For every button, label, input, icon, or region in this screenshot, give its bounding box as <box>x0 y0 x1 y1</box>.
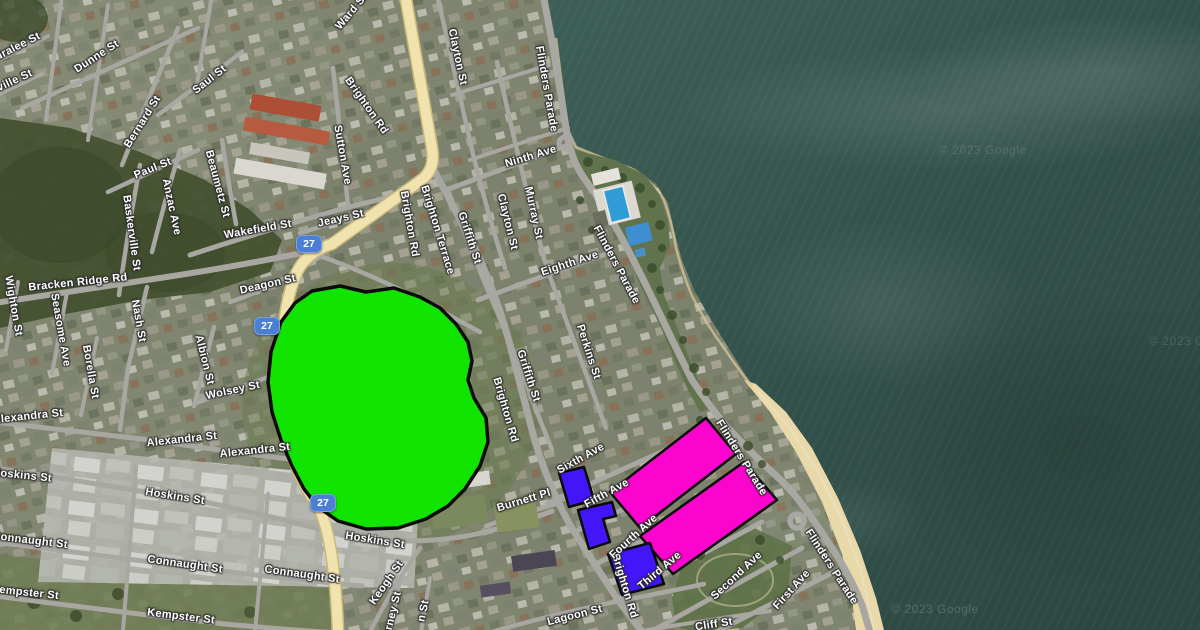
map-artwork <box>0 0 1200 630</box>
satellite-map[interactable]: dralee Stville StDunne StSaul StBernard … <box>0 0 1200 630</box>
